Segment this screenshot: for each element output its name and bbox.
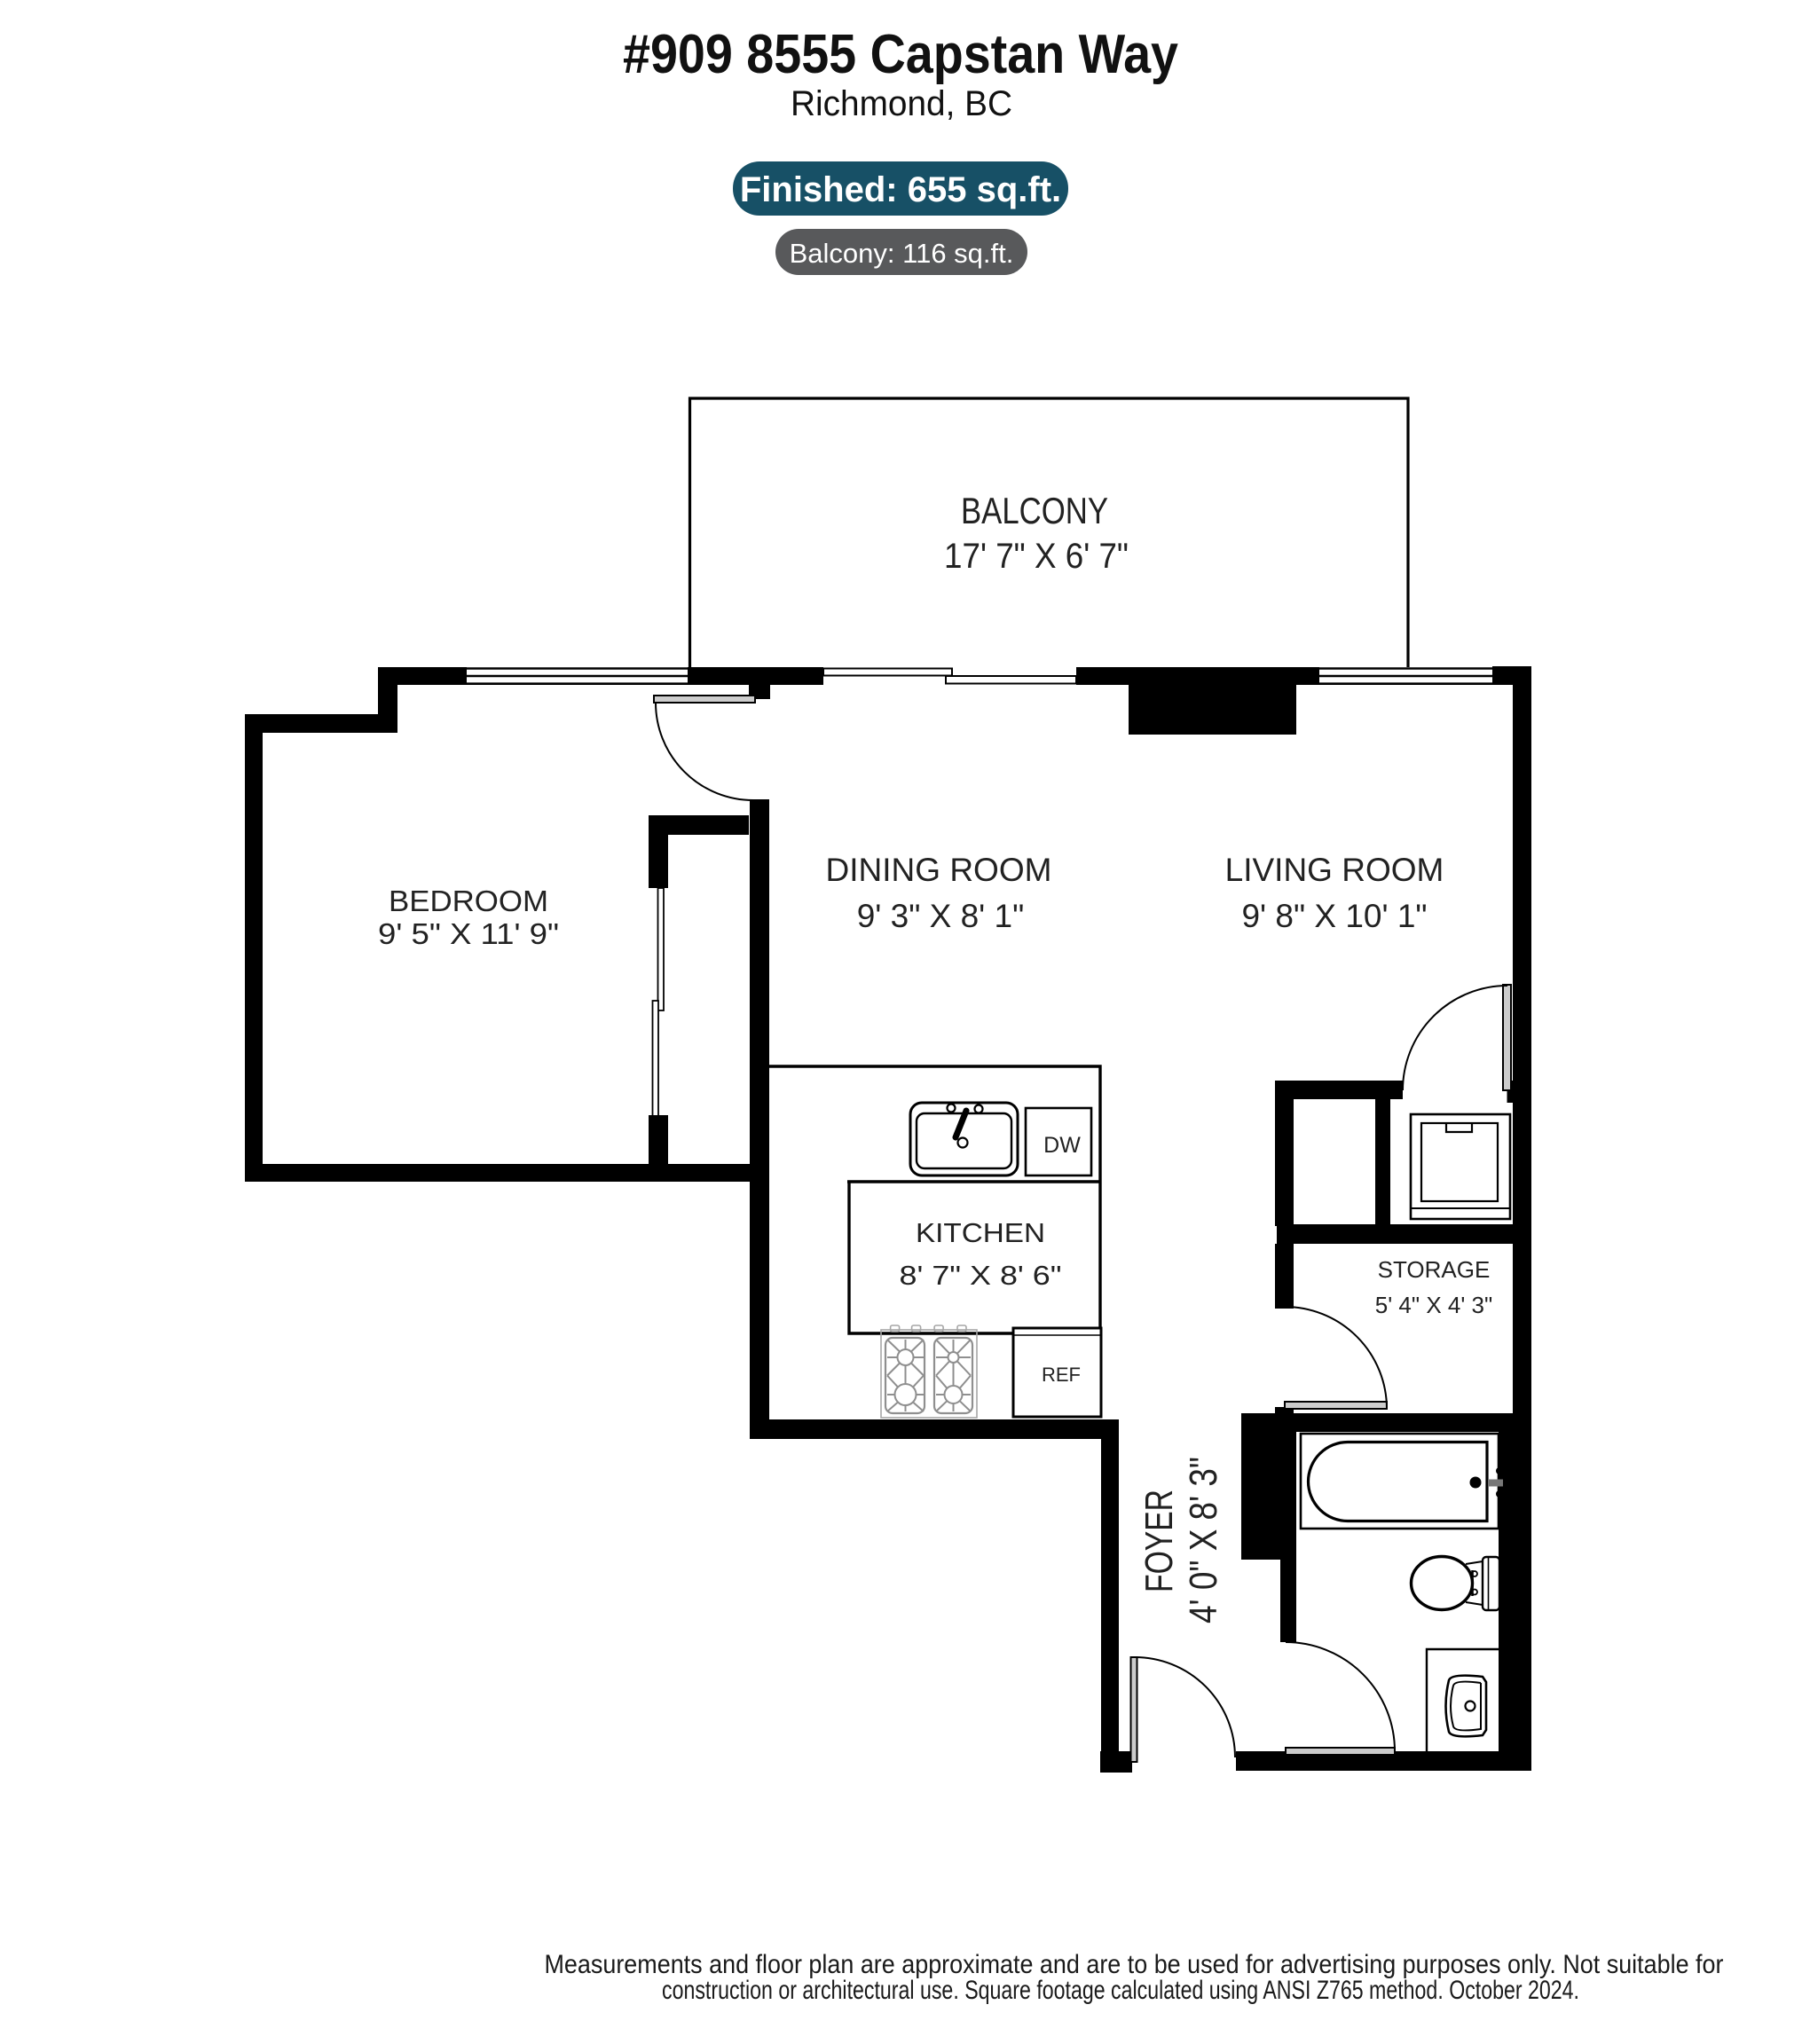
svg-text:REF: REF	[1042, 1364, 1081, 1386]
svg-text:BALCONY: BALCONY	[961, 490, 1108, 531]
svg-text:Finished: 655 sq.ft.: Finished: 655 sq.ft.	[740, 170, 1061, 209]
svg-text:9' 8" X 10' 1": 9' 8" X 10' 1"	[1241, 898, 1427, 934]
svg-text:LIVING ROOM: LIVING ROOM	[1225, 852, 1444, 888]
svg-text:4' 0" X 8' 3": 4' 0" X 8' 3"	[1182, 1457, 1225, 1623]
svg-text:BEDROOM: BEDROOM	[389, 884, 548, 917]
svg-text:5' 4" X 4' 3": 5' 4" X 4' 3"	[1375, 1292, 1492, 1318]
svg-text:DW: DW	[1043, 1133, 1081, 1158]
svg-text:9' 3" X 8' 1": 9' 3" X 8' 1"	[857, 898, 1025, 934]
svg-text:Balcony: 116 sq.ft.: Balcony: 116 sq.ft.	[790, 238, 1014, 269]
svg-text:FOYER: FOYER	[1137, 1490, 1181, 1592]
svg-text:KITCHEN: KITCHEN	[916, 1217, 1045, 1248]
svg-text:8' 7" X 8' 6": 8' 7" X 8' 6"	[900, 1260, 1062, 1291]
svg-text:#909 8555 Capstan Way: #909 8555 Capstan Way	[623, 24, 1178, 85]
svg-text:9' 5" X 11' 9": 9' 5" X 11' 9"	[378, 917, 559, 950]
svg-text:17' 7" X 6' 7": 17' 7" X 6' 7"	[944, 537, 1129, 576]
svg-text:DINING ROOM: DINING ROOM	[826, 852, 1052, 888]
svg-text:Richmond, BC: Richmond, BC	[791, 84, 1012, 123]
svg-text:construction or architectural: construction or architectural use. Squar…	[662, 1976, 1579, 2005]
svg-text:STORAGE: STORAGE	[1378, 1256, 1491, 1283]
